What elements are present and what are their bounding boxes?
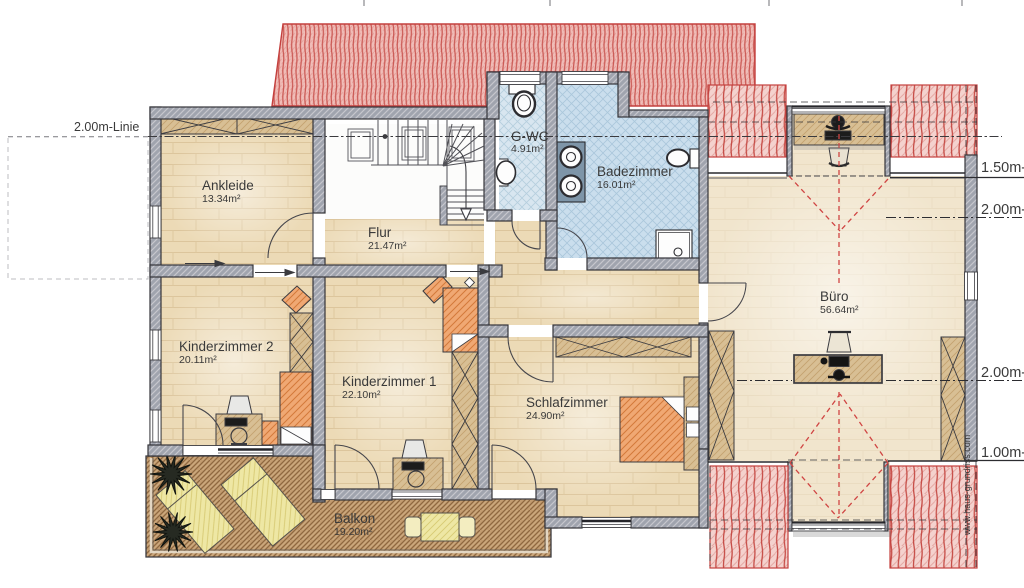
svg-text:1.00m-L: 1.00m-L: [981, 445, 1024, 461]
svg-text:Flur: Flur: [368, 225, 392, 240]
svg-text:www.haus-grundriss.com: www.haus-grundriss.com: [962, 435, 972, 537]
svg-text:Kinderzimmer 2: Kinderzimmer 2: [179, 339, 274, 354]
svg-text:Badezimmer: Badezimmer: [597, 164, 673, 179]
svg-text:20.11m²: 20.11m²: [179, 354, 217, 366]
svg-text:1.50m-L: 1.50m-L: [981, 160, 1024, 176]
svg-text:Balkon: Balkon: [334, 511, 375, 526]
svg-text:19.20m²: 19.20m²: [334, 526, 373, 538]
svg-text:4.91m²: 4.91m²: [511, 143, 544, 155]
svg-text:Ankleide: Ankleide: [202, 178, 254, 193]
svg-text:G-WC: G-WC: [511, 129, 549, 144]
svg-text:2.00m-L: 2.00m-L: [981, 202, 1024, 218]
svg-text:Schlafzimmer: Schlafzimmer: [526, 395, 608, 410]
svg-text:21.47m²: 21.47m²: [368, 240, 407, 252]
svg-text:Büro: Büro: [820, 289, 849, 304]
svg-text:2.00m-Linie: 2.00m-Linie: [74, 120, 139, 134]
svg-text:22.10m²: 22.10m²: [342, 389, 381, 401]
svg-text:13.34m²: 13.34m²: [202, 193, 241, 205]
svg-text:56.64m²: 56.64m²: [820, 304, 859, 316]
svg-text:2.00m-L: 2.00m-L: [981, 365, 1024, 381]
svg-text:16.01m²: 16.01m²: [597, 179, 636, 191]
svg-text:Kinderzimmer 1: Kinderzimmer 1: [342, 374, 437, 389]
svg-text:24.90m²: 24.90m²: [526, 410, 565, 422]
